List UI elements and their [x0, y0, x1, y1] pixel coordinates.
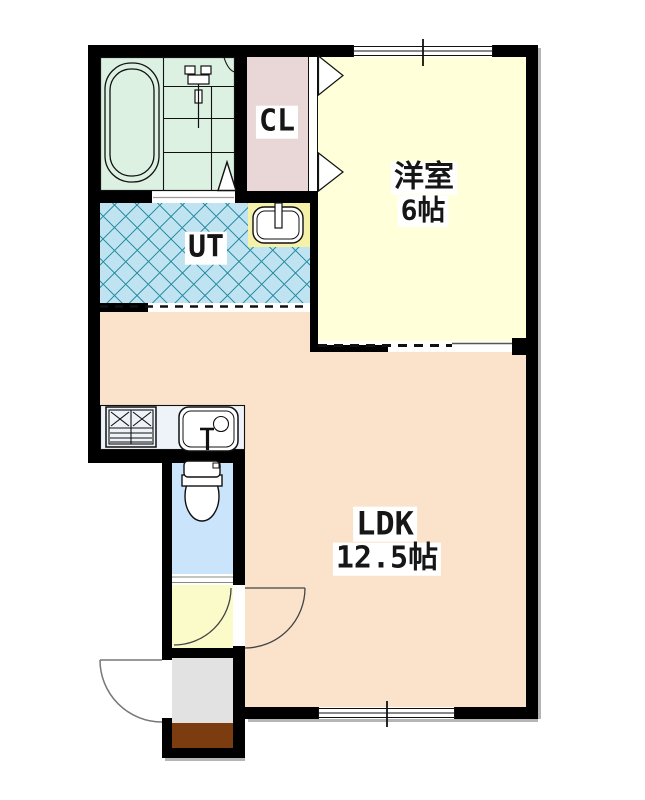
western-room-size: 6帖 [398, 196, 449, 227]
ldk-name: LDK [353, 507, 417, 542]
western-room-name: 洋室 [391, 162, 457, 195]
fixtures-overlay [0, 0, 645, 800]
utility-label: UT [185, 232, 227, 265]
bathroom-outline-icon [101, 58, 235, 191]
stove-icon [106, 407, 156, 447]
entrance-door-swing-arc-icon [100, 660, 162, 722]
toilet-icon [182, 461, 222, 521]
sliding-window-bottom-icon [318, 701, 455, 727]
storage-inner-door-arc-icon [174, 588, 231, 645]
western-room-partition-icon [318, 344, 512, 346]
toilet-door-lines [172, 577, 233, 583]
bathtub-icon [105, 63, 159, 182]
floor-plan: CL 洋室 6帖 UT LDK 12.5帖 [0, 0, 645, 800]
ldk-size: 12.5帖 [333, 543, 441, 576]
sliding-window-top-icon [353, 39, 493, 66]
closet-label: CL [256, 106, 298, 139]
folding-door-triangles-icon [309, 56, 344, 191]
ldk-door-swing-arc-icon [245, 588, 305, 648]
kitchen-sink-icon [179, 407, 238, 451]
door-pivot-triangle-icon [218, 162, 236, 191]
washbasin-icon [253, 203, 303, 243]
